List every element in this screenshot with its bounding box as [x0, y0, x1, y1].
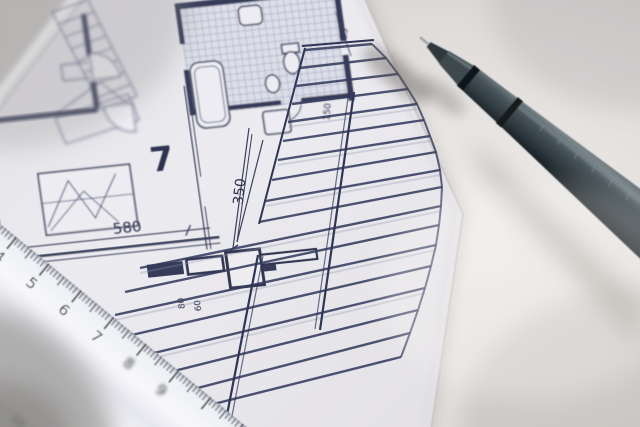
dimension-85: 85: [340, 28, 351, 40]
sink: [238, 5, 264, 26]
svg-text:580: 580: [112, 217, 143, 238]
photo-canvas: 7 580: [0, 0, 640, 427]
svg-text:350: 350: [231, 177, 250, 205]
photo-scene: 7 580: [0, 0, 640, 427]
